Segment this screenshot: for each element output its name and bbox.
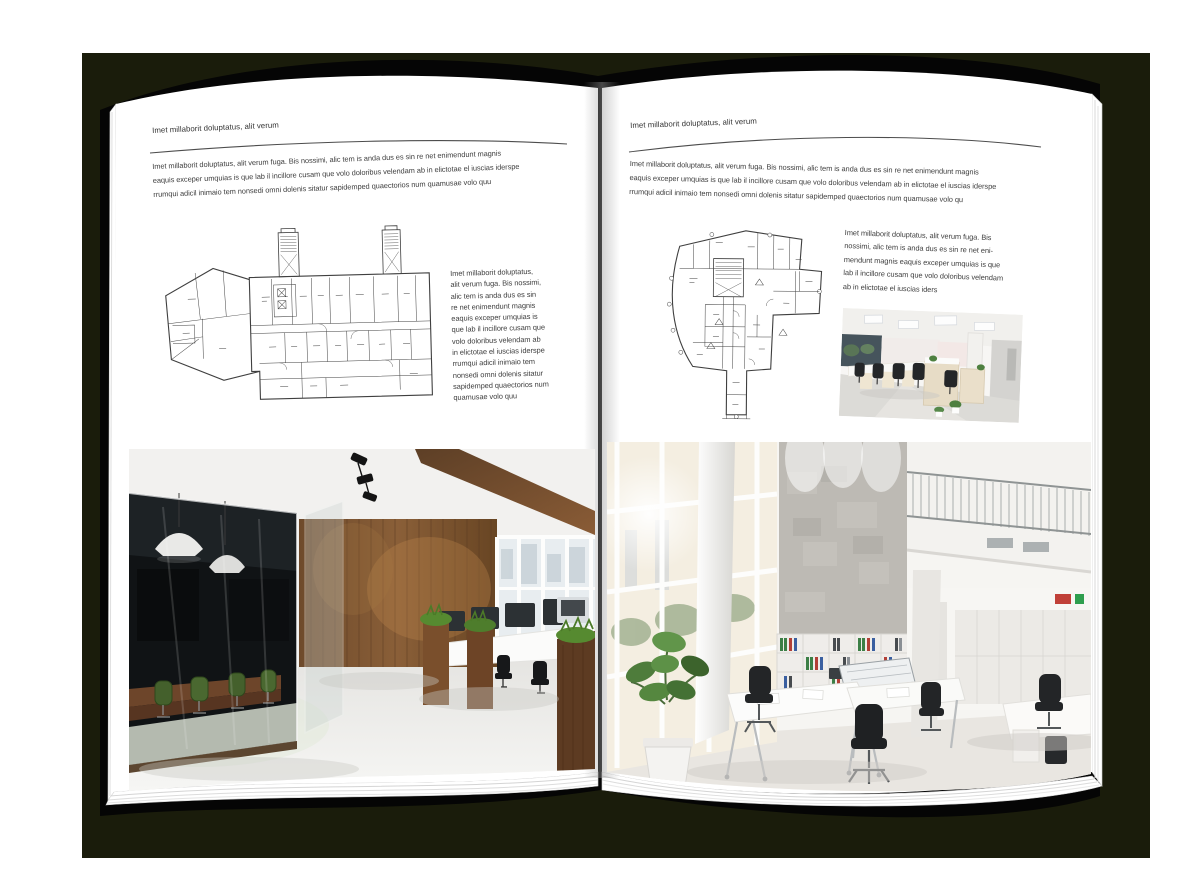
hallway-wall xyxy=(990,340,1022,403)
upper-room-dividers xyxy=(271,275,416,325)
glass-partition xyxy=(305,501,343,733)
book-mockup-scene: Imet millaborit doluptatus, alit verum I… xyxy=(0,0,1200,891)
photo-bright-atrium-office xyxy=(607,442,1091,800)
corridor xyxy=(251,321,431,334)
left-page-side-text: Imet millaborit doluptatus,alit verum fu… xyxy=(450,265,549,403)
photo-dark-loft-office xyxy=(129,449,595,791)
mezzanine xyxy=(907,442,1091,572)
annex-outline xyxy=(165,267,260,381)
elevator-core xyxy=(273,284,296,317)
safety-sign xyxy=(1075,594,1084,604)
right-page-side-text: Imet millaborit doluptatus, alit verum f… xyxy=(843,226,1005,299)
air-vent xyxy=(987,538,1013,548)
stair-towers xyxy=(278,226,401,277)
right-page-intro-paragraph: Imet millaborit doluptatus, alit verum f… xyxy=(629,157,997,208)
main-outline xyxy=(249,273,432,400)
top-rooms xyxy=(680,232,800,269)
right-wing-rooms xyxy=(773,271,819,313)
concrete-feature-wall xyxy=(779,442,907,634)
lower-room-dividers xyxy=(259,329,433,399)
stair-core xyxy=(713,259,743,297)
air-vent xyxy=(1023,542,1049,552)
photo-cubicle-office-small xyxy=(839,308,1023,423)
floor-plan-irregular-building xyxy=(648,218,842,426)
corridor xyxy=(723,297,734,369)
room-number-marks xyxy=(688,242,812,405)
floor-plan-wide-building xyxy=(156,222,453,418)
fixture-triangles xyxy=(707,279,788,350)
door-swings xyxy=(733,299,774,365)
room-number-marks xyxy=(182,293,418,389)
annex-rooms xyxy=(167,270,251,360)
center-rooms xyxy=(693,304,772,369)
glass-meeting-room xyxy=(129,493,297,773)
facade-columns xyxy=(666,232,822,419)
first-aid-sign xyxy=(1055,594,1071,604)
